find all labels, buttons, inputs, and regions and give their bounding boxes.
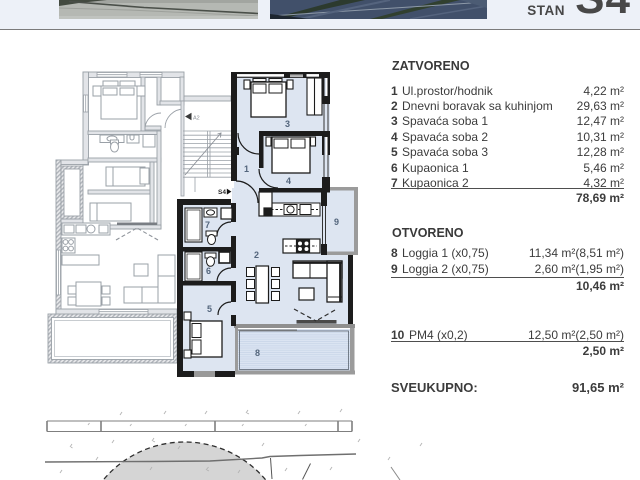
svg-text:3: 3	[285, 119, 290, 129]
svg-text:4: 4	[286, 176, 291, 186]
svg-text:2: 2	[254, 250, 259, 260]
svg-text:A2: A2	[193, 116, 200, 122]
svg-text:5: 5	[207, 304, 212, 314]
svg-text:6: 6	[206, 266, 211, 276]
svg-text:9: 9	[334, 217, 339, 227]
svg-text:1: 1	[244, 164, 249, 174]
svg-text:S4: S4	[218, 189, 226, 196]
svg-text:7: 7	[205, 220, 210, 230]
svg-text:8: 8	[255, 348, 260, 358]
